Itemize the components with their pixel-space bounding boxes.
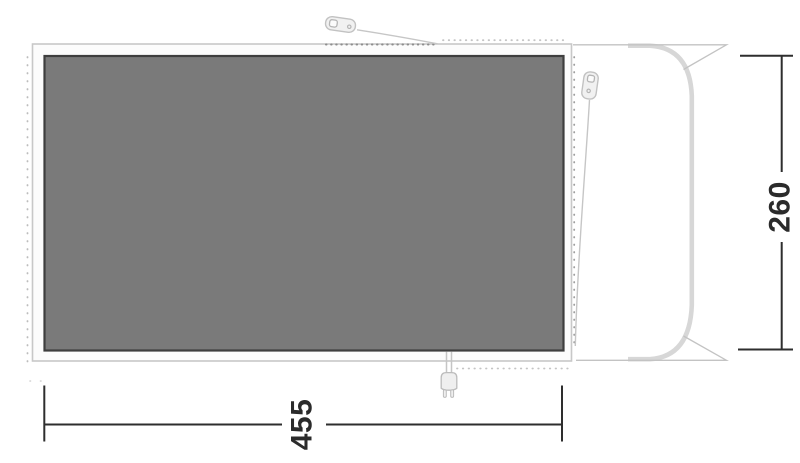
tent-peg-icon (581, 71, 599, 100)
peg-hole (587, 75, 595, 82)
vehicle-outline (628, 46, 692, 360)
guy-line-top (357, 30, 438, 44)
connection-strap-top (573, 45, 727, 70)
plug-body (441, 373, 457, 391)
plug-pin (443, 390, 446, 398)
peg-hole (329, 19, 338, 27)
connection-strap-bottom (576, 336, 727, 360)
groundsheet-floor (45, 56, 564, 351)
depth-dimension-label: 260 (764, 181, 797, 233)
guy-line-right (575, 100, 589, 346)
tent-floorplan-diagram: 455 260 (0, 0, 800, 463)
tent-floorplan-canvas: 455 260 (0, 0, 800, 463)
width-dimension-label: 455 (286, 399, 319, 451)
plug-pin (451, 390, 454, 398)
tent-peg-icon (325, 16, 357, 33)
